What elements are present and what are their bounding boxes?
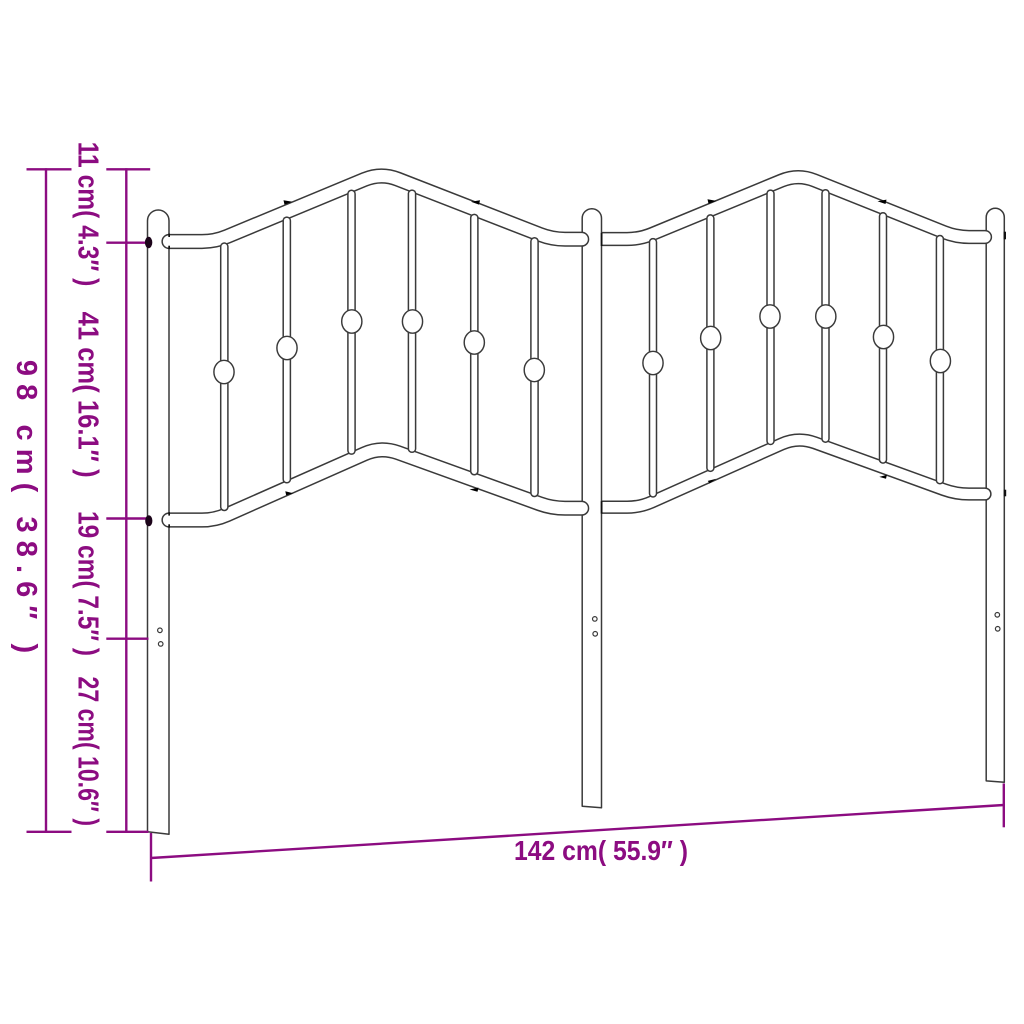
svg-text:98 cm( 38.6″ ): 98 cm( 38.6″ ) xyxy=(10,360,42,661)
svg-text:11 cm( 4.3″ ): 11 cm( 4.3″ ) xyxy=(71,142,103,287)
svg-text:27 cm( 10.6″ ): 27 cm( 10.6″ ) xyxy=(71,677,103,827)
svg-text:19 cm( 7.5″ ): 19 cm( 7.5″ ) xyxy=(71,511,103,656)
svg-text:142 cm( 55.9″ ): 142 cm( 55.9″ ) xyxy=(514,835,688,866)
svg-text:41 cm( 16.1″ ): 41 cm( 16.1″ ) xyxy=(71,312,103,478)
